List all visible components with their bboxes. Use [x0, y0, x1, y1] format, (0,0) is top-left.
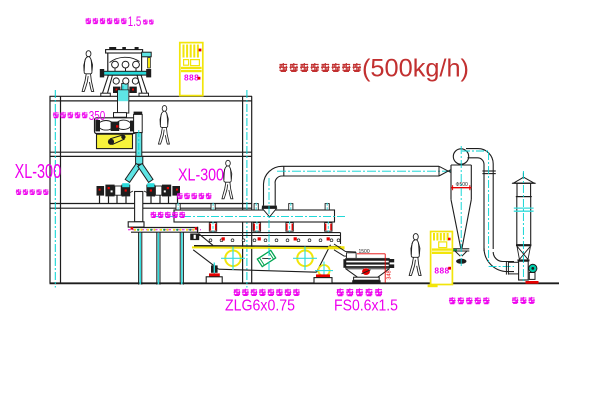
svg-text:XL-300: XL-300: [178, 164, 224, 184]
svg-text:XL-300: XL-300: [15, 161, 62, 183]
svg-text:888: 888: [184, 73, 199, 83]
svg-text:1500: 1500: [359, 249, 370, 255]
svg-text:350: 350: [89, 108, 106, 123]
svg-text:Φ500: Φ500: [456, 182, 469, 188]
svg-text:1.5: 1.5: [128, 14, 142, 29]
svg-text:ZLG6x0.75: ZLG6x0.75: [225, 298, 295, 315]
svg-text:888: 888: [434, 265, 449, 275]
svg-text:(500kg/h): (500kg/h): [362, 54, 469, 82]
svg-text:FS0.6x1.5: FS0.6x1.5: [334, 298, 398, 315]
svg-text:348: 348: [387, 270, 393, 279]
